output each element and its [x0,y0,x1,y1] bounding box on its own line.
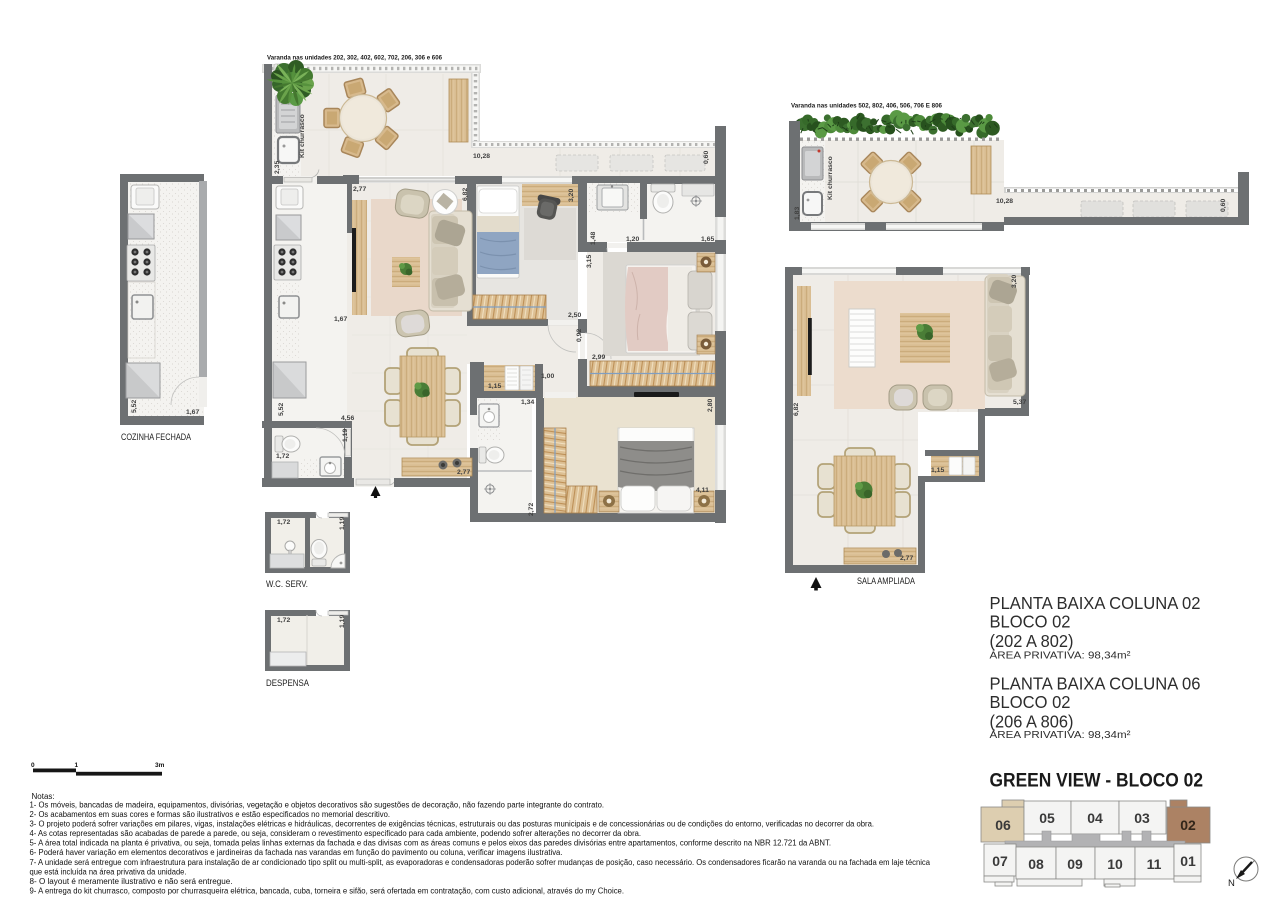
svg-text:1,34: 1,34 [521,399,534,406]
svg-text:3,20: 3,20 [1011,275,1018,288]
svg-text:5,52: 5,52 [131,400,138,413]
svg-text:1,65: 1,65 [701,236,714,243]
svg-text:6- Poderá haver variação em el: 6- Poderá haver variação em elementos de… [30,848,563,857]
svg-text:1- Os móveis, bancadas de made: 1- Os móveis, bancadas de madeira, equip… [30,801,605,810]
svg-text:1,72: 1,72 [277,617,290,624]
svg-text:W.C. SERV.: W.C. SERV. [266,579,308,589]
svg-text:2,80: 2,80 [707,399,714,412]
svg-text:1,83: 1,83 [794,207,801,220]
svg-text:2,77: 2,77 [353,186,366,193]
svg-text:3,15: 3,15 [586,255,593,268]
svg-text:GREEN VIEW - BLOCO 02: GREEN VIEW - BLOCO 02 [990,770,1204,791]
svg-text:10,28: 10,28 [473,153,490,160]
svg-text:1,67: 1,67 [334,316,347,323]
svg-text:2- Os acabamentos em suas core: 2- Os acabamentos em suas cores e formas… [30,810,391,819]
svg-text:03: 03 [1134,810,1150,826]
svg-text:Varanda nas unidades 502, 802,: Varanda nas unidades 502, 802, 406, 506,… [791,103,942,110]
svg-text:PLANTA BAIXA COLUNA 02: PLANTA BAIXA COLUNA 02 [990,593,1201,613]
svg-text:0: 0 [31,762,35,769]
svg-text:07: 07 [992,853,1008,869]
svg-text:N: N [1228,878,1235,889]
svg-text:1,19: 1,19 [342,429,349,442]
svg-text:1,19: 1,19 [339,615,346,628]
svg-text:09: 09 [1067,856,1083,872]
svg-text:1,19: 1,19 [339,517,346,530]
svg-text:2,35: 2,35 [274,161,281,174]
svg-text:que está incluída na área priv: que está incluída na área privativa da u… [30,867,187,876]
svg-text:7- A unidade será entregue com: 7- A unidade será entregue com infraestr… [30,858,931,867]
svg-text:4- As cotas representadas são: 4- As cotas representadas são acabadas d… [30,829,642,838]
svg-text:Varanda nas unidades 202, 302,: Varanda nas unidades 202, 302, 402, 602,… [267,55,442,62]
svg-text:(202 A 802): (202 A 802) [990,631,1074,651]
svg-text:1: 1 [75,762,79,769]
svg-text:2,72: 2,72 [528,503,535,516]
svg-text:5,37: 5,37 [1013,399,1026,406]
svg-text:2,77: 2,77 [457,469,470,476]
svg-text:3,20: 3,20 [568,189,575,202]
svg-text:4,56: 4,56 [341,415,354,422]
svg-text:01: 01 [1180,853,1196,869]
svg-text:05: 05 [1039,810,1055,826]
svg-text:2,99: 2,99 [592,354,605,361]
svg-text:2,77: 2,77 [900,555,913,562]
svg-text:Kit churrasco: Kit churrasco [299,114,306,158]
svg-text:1,15: 1,15 [931,467,944,474]
svg-text:06: 06 [995,817,1011,833]
svg-text:DESPENSA: DESPENSA [266,678,309,688]
svg-text:5,52: 5,52 [278,403,285,416]
svg-text:3- O projeto poderá sofrer var: 3- O projeto poderá sofrer variações em … [30,820,875,829]
svg-text:9- A entrega do kit churrasco,: 9- A entrega do kit churrasco, composto … [30,886,625,895]
svg-text:BLOCO 02: BLOCO 02 [990,692,1071,712]
svg-text:6,82: 6,82 [462,188,469,201]
svg-text:1,00: 1,00 [541,373,554,380]
svg-text:02: 02 [1180,817,1196,833]
svg-text:2,50: 2,50 [568,312,581,319]
svg-text:1,15: 1,15 [488,383,501,390]
svg-text:ÁREA PRIVATIVA: 98,34m²: ÁREA PRIVATIVA: 98,34m² [990,649,1132,662]
svg-text:10,28: 10,28 [996,198,1013,205]
svg-text:0,92: 0,92 [576,329,583,342]
svg-text:8- O layout é meramente ilustr: 8- O layout é meramente ilustrativo e nã… [30,877,233,886]
svg-text:08: 08 [1028,856,1044,872]
svg-text:3m: 3m [155,762,165,769]
svg-text:4,11: 4,11 [696,487,709,494]
svg-text:SALA AMPLIADA: SALA AMPLIADA [857,576,915,586]
svg-text:1,48: 1,48 [590,232,597,245]
svg-text:6,82: 6,82 [793,403,800,416]
svg-text:1,72: 1,72 [276,453,289,460]
svg-text:(206 A 806): (206 A 806) [990,711,1074,731]
svg-text:1,20: 1,20 [626,236,639,243]
svg-text:11: 11 [1147,856,1162,872]
svg-text:0,60: 0,60 [1220,199,1227,212]
svg-text:PLANTA BAIXA COLUNA 06: PLANTA BAIXA COLUNA 06 [990,674,1201,694]
svg-text:Kit churrasco: Kit churrasco [827,156,834,200]
svg-text:BLOCO 02: BLOCO 02 [990,611,1071,631]
svg-text:COZINHA FECHADA: COZINHA FECHADA [121,432,191,442]
svg-text:0,60: 0,60 [703,151,710,164]
svg-text:1,72: 1,72 [277,519,290,526]
svg-text:10: 10 [1107,856,1123,872]
svg-text:5- A área total indicada na pl: 5- A área total indicada na planta é pri… [30,839,832,848]
svg-text:04: 04 [1087,810,1103,826]
svg-text:ÁREA PRIVATIVA: 98,34m²: ÁREA PRIVATIVA: 98,34m² [990,728,1132,741]
svg-text:1,67: 1,67 [186,409,199,416]
